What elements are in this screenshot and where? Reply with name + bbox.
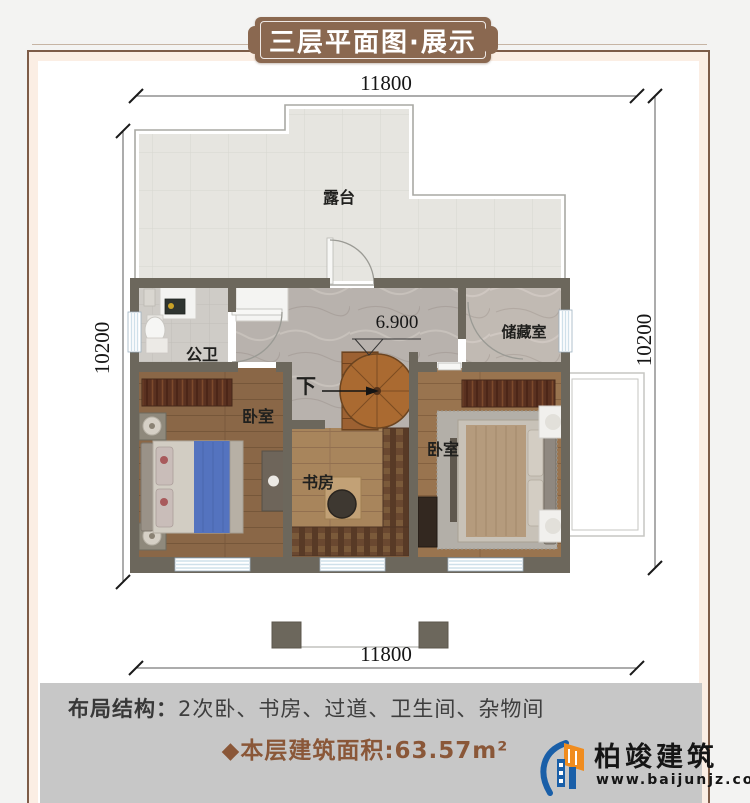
dimension-right: 10200 bbox=[633, 300, 657, 380]
room-label-bedroom-left: 卧室 bbox=[228, 408, 288, 426]
logo-url: www.baijunjz.com bbox=[596, 772, 750, 788]
side-balcony-outline bbox=[566, 373, 644, 536]
dimension-top: 11800 bbox=[336, 72, 436, 95]
room-label-storage: 储藏室 bbox=[489, 324, 559, 341]
room-label-study: 书房 bbox=[288, 474, 348, 492]
room-label-bedroom-right: 卧室 bbox=[413, 441, 473, 459]
layout-structure-line: 布局结构：2次卧、书房、过道、卫生间、杂物间 bbox=[68, 693, 674, 723]
room-label-terrace: 露台 bbox=[309, 189, 369, 207]
company-logo: 柏竣建筑 www.baijunjz.com bbox=[540, 733, 740, 801]
room-label-bathroom: 公卫 bbox=[172, 346, 232, 364]
stairs-down-label: 下 bbox=[293, 375, 319, 397]
floor-plan-page: 三层平面图·展示 bbox=[0, 0, 750, 803]
level-value-label: 6.900 bbox=[362, 313, 432, 334]
logo-name: 柏竣建筑 bbox=[594, 735, 718, 774]
floor-area-text: ◆本层建筑面积:63.57m² bbox=[200, 731, 530, 765]
company-logo-icon bbox=[540, 737, 590, 797]
dimension-bottom: 11800 bbox=[336, 643, 436, 666]
layout-structure-label: 布局结构： bbox=[68, 697, 178, 721]
layout-structure-value: 2次卧、书房、过道、卫生间、杂物间 bbox=[178, 697, 544, 721]
dimension-left: 10200 bbox=[91, 308, 115, 388]
